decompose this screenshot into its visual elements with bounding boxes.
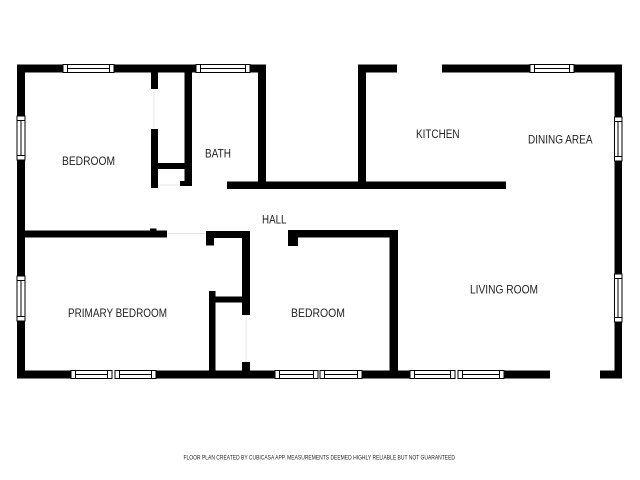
svg-text:LIVING ROOM: LIVING ROOM — [470, 283, 538, 297]
svg-text:BEDROOM: BEDROOM — [62, 154, 115, 168]
svg-text:PRIMARY BEDROOM: PRIMARY BEDROOM — [68, 306, 167, 320]
svg-text:BEDROOM: BEDROOM — [291, 306, 345, 320]
svg-text:DINING AREA: DINING AREA — [528, 133, 593, 147]
svg-text:KITCHEN: KITCHEN — [416, 127, 460, 141]
svg-text:HALL: HALL — [262, 213, 287, 227]
svg-text:FLOOR PLAN CREATED BY CUBICASA: FLOOR PLAN CREATED BY CUBICASA APP. MEAS… — [184, 455, 456, 462]
svg-text:BATH: BATH — [205, 147, 231, 161]
